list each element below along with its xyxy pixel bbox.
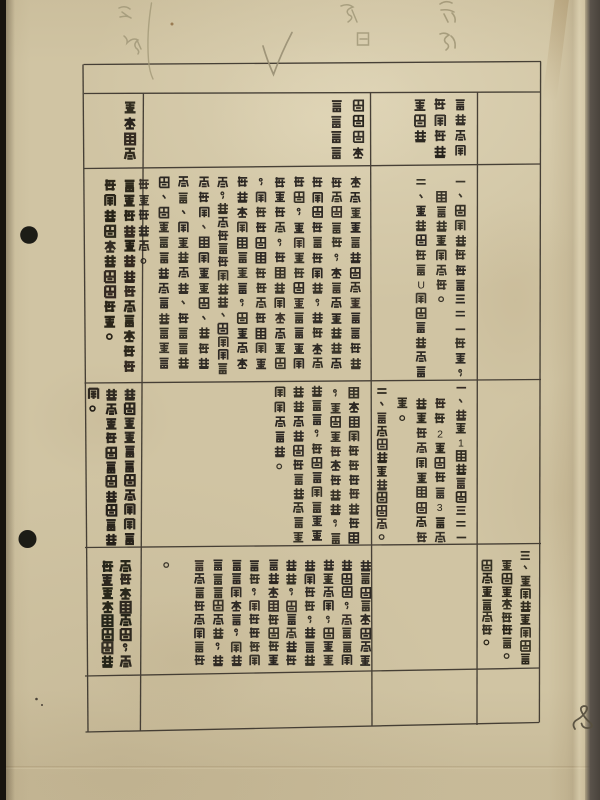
svg-text:U: U <box>417 279 425 291</box>
svg-text:3: 3 <box>437 502 443 514</box>
svg-text:2: 2 <box>437 428 443 440</box>
svg-text:1: 1 <box>458 437 464 449</box>
